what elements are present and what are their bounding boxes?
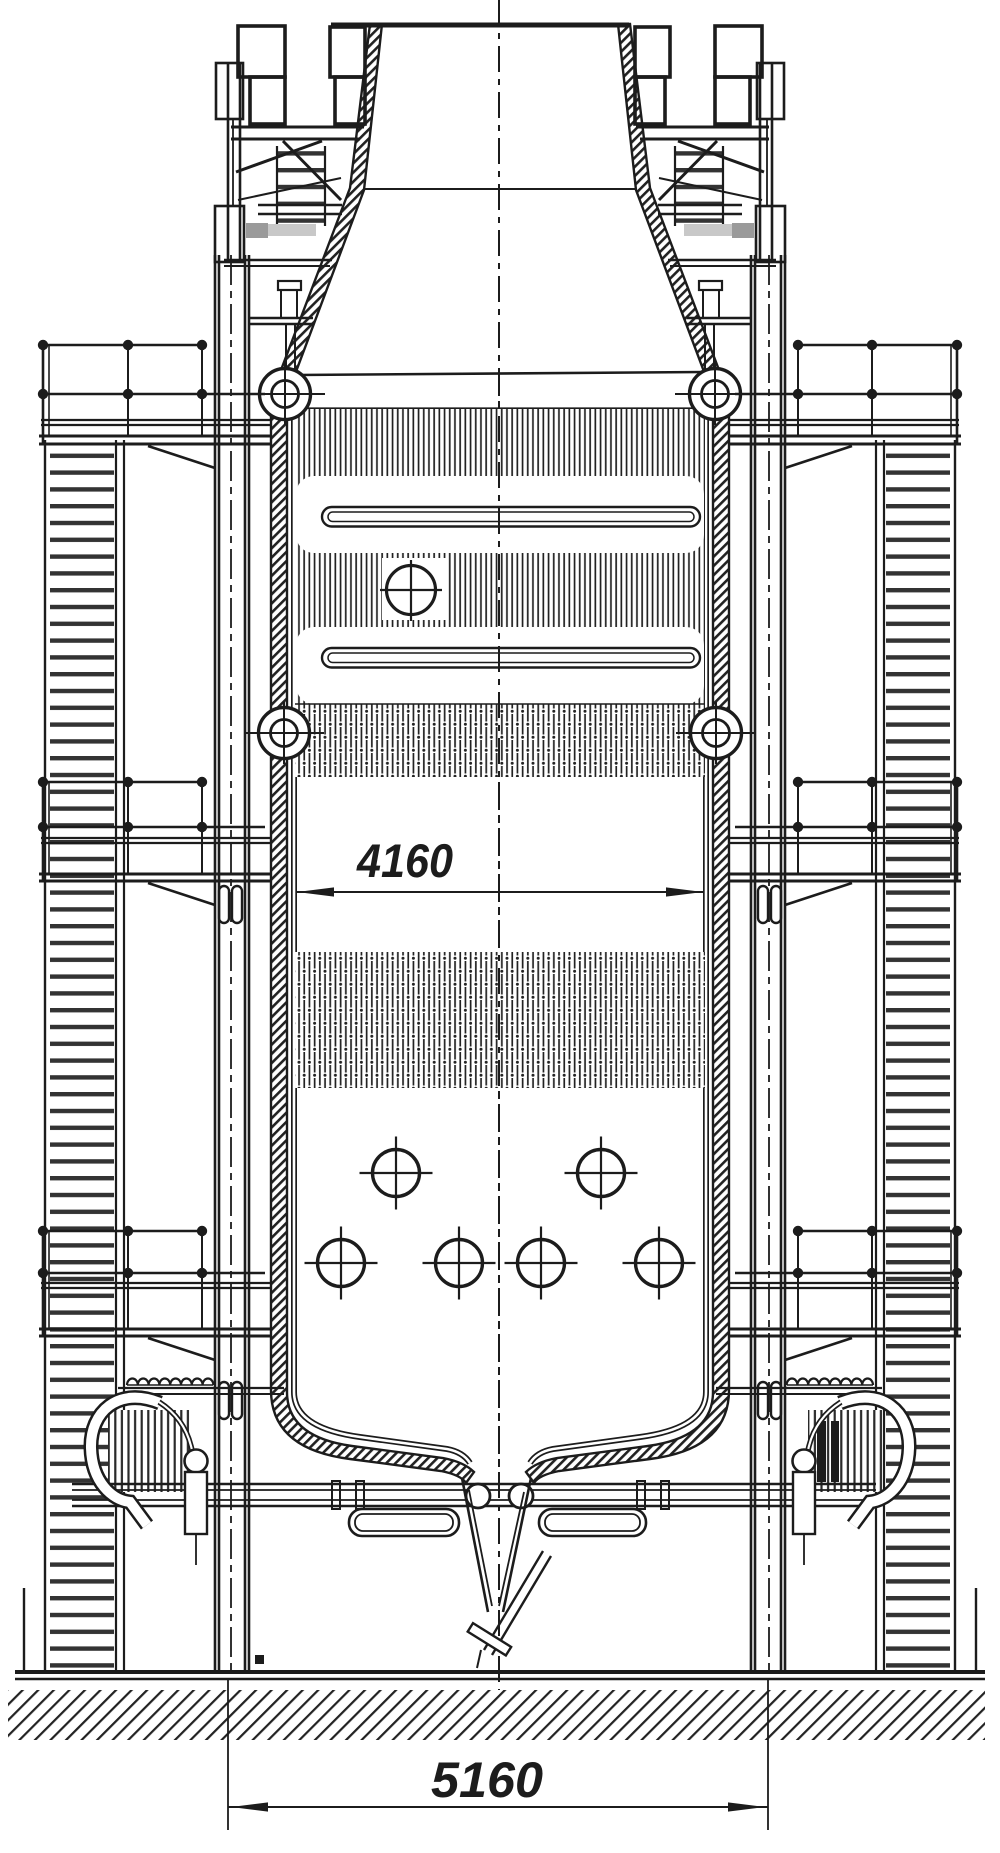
svg-text:4160: 4160 xyxy=(356,834,453,887)
svg-text:5160: 5160 xyxy=(431,1752,543,1808)
